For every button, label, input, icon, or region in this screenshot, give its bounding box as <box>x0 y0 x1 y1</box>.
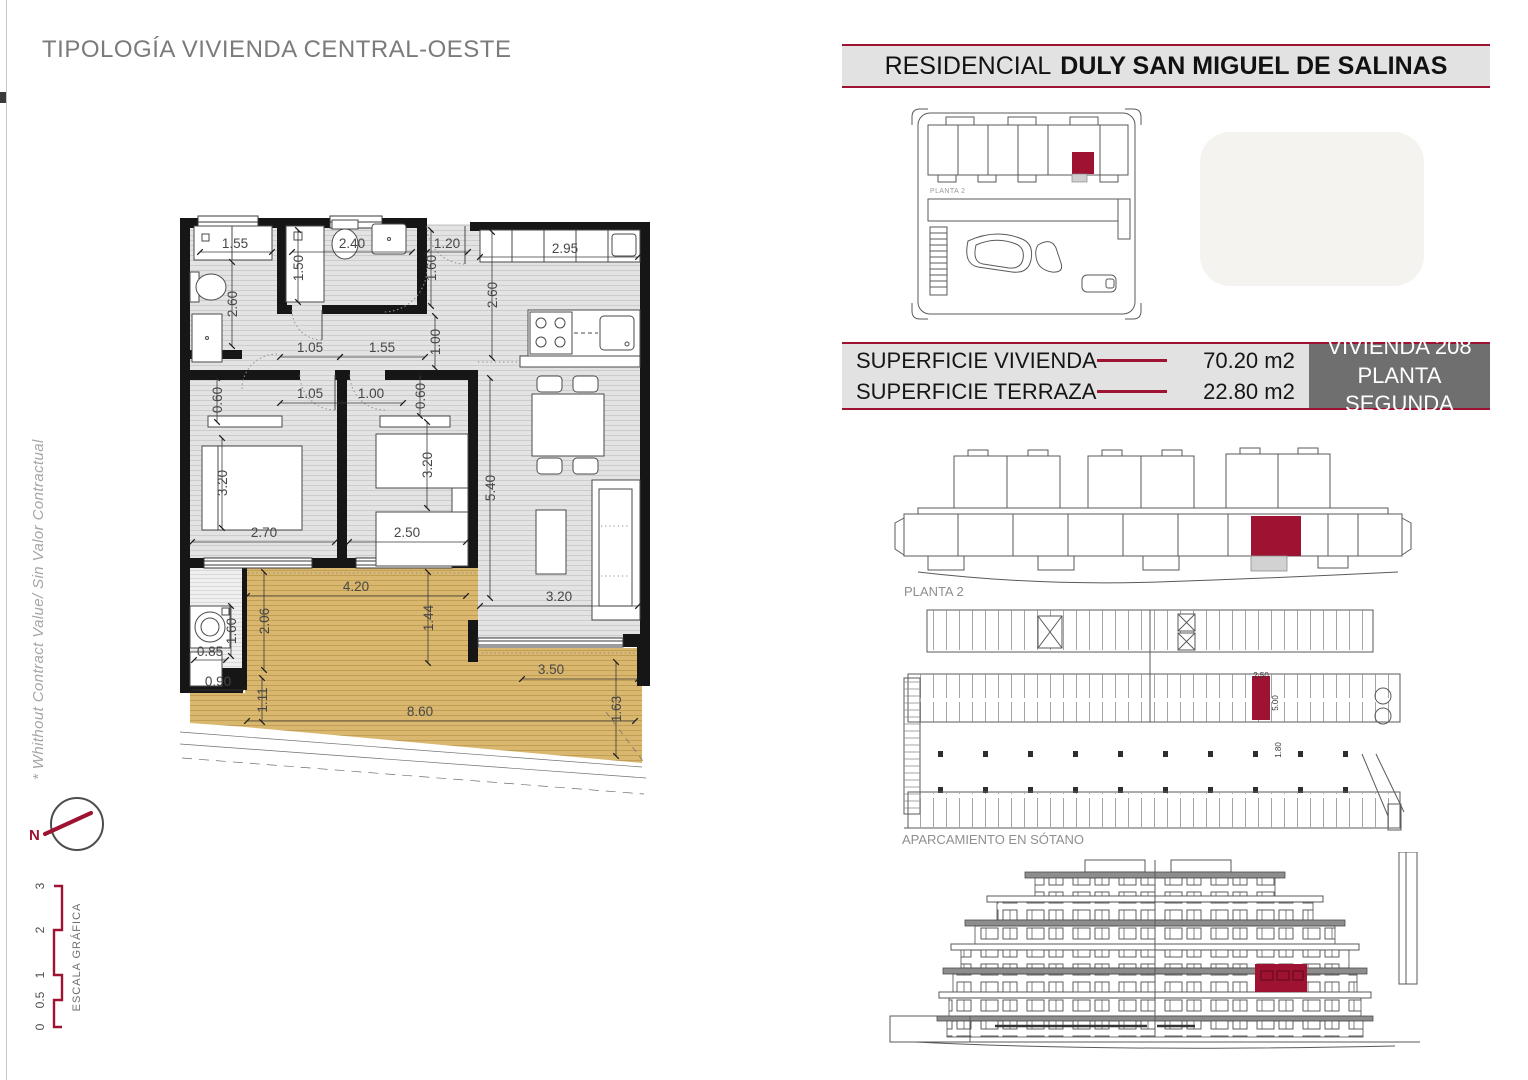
graphic-scale: 0 0.5 1 2 3 ESCALA GRÁFICA <box>18 872 103 1042</box>
svg-text:1.60: 1.60 <box>224 618 239 644</box>
svg-text:1.11: 1.11 <box>255 687 270 712</box>
unit-terrace <box>1251 556 1287 571</box>
project-header: RESIDENCIAL DULY SAN MIGUEL DE SALINAS <box>842 44 1490 88</box>
surface-info-panel: SUPERFICIE VIVIENDA 70.20 m2 SUPERFICIE … <box>842 342 1490 410</box>
apartment-floor-plan: 1.552.401.202.952.601.501.602.601.001.05… <box>180 210 660 800</box>
highlighted-unit <box>1251 516 1301 556</box>
svg-text:2.40: 2.40 <box>339 236 365 251</box>
scale-tick-labels: 0 0.5 1 2 3 <box>33 882 47 1030</box>
svg-text:1: 1 <box>33 971 47 978</box>
svg-text:2: 2 <box>33 926 47 933</box>
svg-text:0.85: 0.85 <box>197 644 223 659</box>
unit-badge: VIVIENDA 208 PLANTA SEGUNDA <box>1309 344 1490 408</box>
unit-floor: PLANTA SEGUNDA <box>1309 362 1490 419</box>
surface-label: SUPERFICIE VIVIENDA <box>856 348 1097 374</box>
svg-text:3.20: 3.20 <box>546 589 572 604</box>
svg-text:0.5: 0.5 <box>33 991 47 1008</box>
svg-text:2.60: 2.60 <box>485 282 500 308</box>
svg-text:1.05: 1.05 <box>297 340 323 355</box>
svg-text:1.00: 1.00 <box>428 329 443 355</box>
svg-text:1.60: 1.60 <box>424 255 439 281</box>
svg-text:3.20: 3.20 <box>420 452 435 478</box>
key-site-plan: PLANTA 2 <box>900 103 1170 323</box>
svg-text:3: 3 <box>33 882 47 889</box>
svg-text:1.55: 1.55 <box>222 236 248 251</box>
key-plan-label: PLANTA 2 <box>930 188 965 195</box>
svg-text:2.95: 2.95 <box>552 241 578 256</box>
svg-text:5.40: 5.40 <box>483 475 498 501</box>
header-prefix: RESIDENCIAL <box>885 52 1052 81</box>
contract-note: * Whithout Contract Value/ Sin Valor Con… <box>30 466 47 780</box>
parking-plan: 2.505.001.80 APARCAMIENTO EN SÓTANO <box>888 604 1418 848</box>
scale-title: ESCALA GRÁFICA <box>70 903 83 1012</box>
svg-text:0.60: 0.60 <box>210 387 225 413</box>
page-edge-tick <box>0 92 6 103</box>
north-label: N <box>29 827 40 844</box>
svg-text:8.60: 8.60 <box>407 704 433 719</box>
svg-text:1.80: 1.80 <box>1274 742 1283 758</box>
svg-text:0.90: 0.90 <box>205 674 231 689</box>
leader-dash <box>1097 390 1167 393</box>
surface-row: SUPERFICIE TERRAZA 22.80 m2 <box>856 379 1295 405</box>
scale-bar-line <box>54 886 62 1027</box>
page-edge-line <box>6 0 7 1080</box>
north-compass: N <box>25 790 115 860</box>
faded-logo-patch <box>1200 132 1424 286</box>
svg-text:1.50: 1.50 <box>291 255 306 281</box>
page-title: TIPOLOGÍA VIVIENDA CENTRAL-OESTE <box>42 36 511 64</box>
svg-text:1.44: 1.44 <box>421 604 436 631</box>
plan-sheet: TIPOLOGÍA VIVIENDA CENTRAL-OESTE RESIDEN… <box>0 0 1528 1080</box>
svg-text:3.20: 3.20 <box>215 470 230 496</box>
svg-text:4.20: 4.20 <box>343 579 369 594</box>
svg-text:2.70: 2.70 <box>251 525 277 540</box>
header-project-name: DULY SAN MIGUEL DE SALINAS <box>1060 52 1447 81</box>
leader-dash <box>1097 359 1167 362</box>
svg-text:2.06: 2.06 <box>257 608 272 634</box>
highlighted-unit <box>1255 964 1307 992</box>
facade-rows <box>937 860 1373 1037</box>
building-elevation <box>885 852 1425 1052</box>
parking-label: APARCAMIENTO EN SÓTANO <box>902 832 1084 847</box>
svg-text:1.05: 1.05 <box>297 386 323 401</box>
unit-number: VIVIENDA 208 <box>1327 333 1471 362</box>
tower-blocks <box>954 448 1330 508</box>
surface-row: SUPERFICIE VIVIENDA 70.20 m2 <box>856 348 1295 374</box>
svg-text:1.55: 1.55 <box>369 340 395 355</box>
highlighted-parking-space <box>1252 676 1270 720</box>
surface-value: 22.80 m2 <box>1185 379 1295 405</box>
floor-overview-label: PLANTA 2 <box>904 584 964 599</box>
svg-text:2.50: 2.50 <box>394 525 420 540</box>
svg-text:1.00: 1.00 <box>358 386 384 401</box>
floor-overview-plan: PLANTA 2 <box>888 438 1423 603</box>
svg-text:0: 0 <box>33 1023 47 1030</box>
highlighted-unit <box>1072 152 1094 174</box>
svg-text:2.50: 2.50 <box>1253 671 1269 680</box>
svg-text:1.63: 1.63 <box>609 696 624 722</box>
svg-text:1.20: 1.20 <box>434 236 460 251</box>
surface-values: SUPERFICIE VIVIENDA 70.20 m2 SUPERFICIE … <box>842 344 1309 408</box>
compass-circle <box>51 798 103 850</box>
svg-text:3.50: 3.50 <box>538 662 564 677</box>
surface-value: 70.20 m2 <box>1185 348 1295 374</box>
svg-text:0.60: 0.60 <box>413 383 428 409</box>
svg-text:5.00: 5.00 <box>1271 695 1280 711</box>
surface-label: SUPERFICIE TERRAZA <box>856 379 1096 405</box>
svg-text:2.60: 2.60 <box>225 291 240 317</box>
